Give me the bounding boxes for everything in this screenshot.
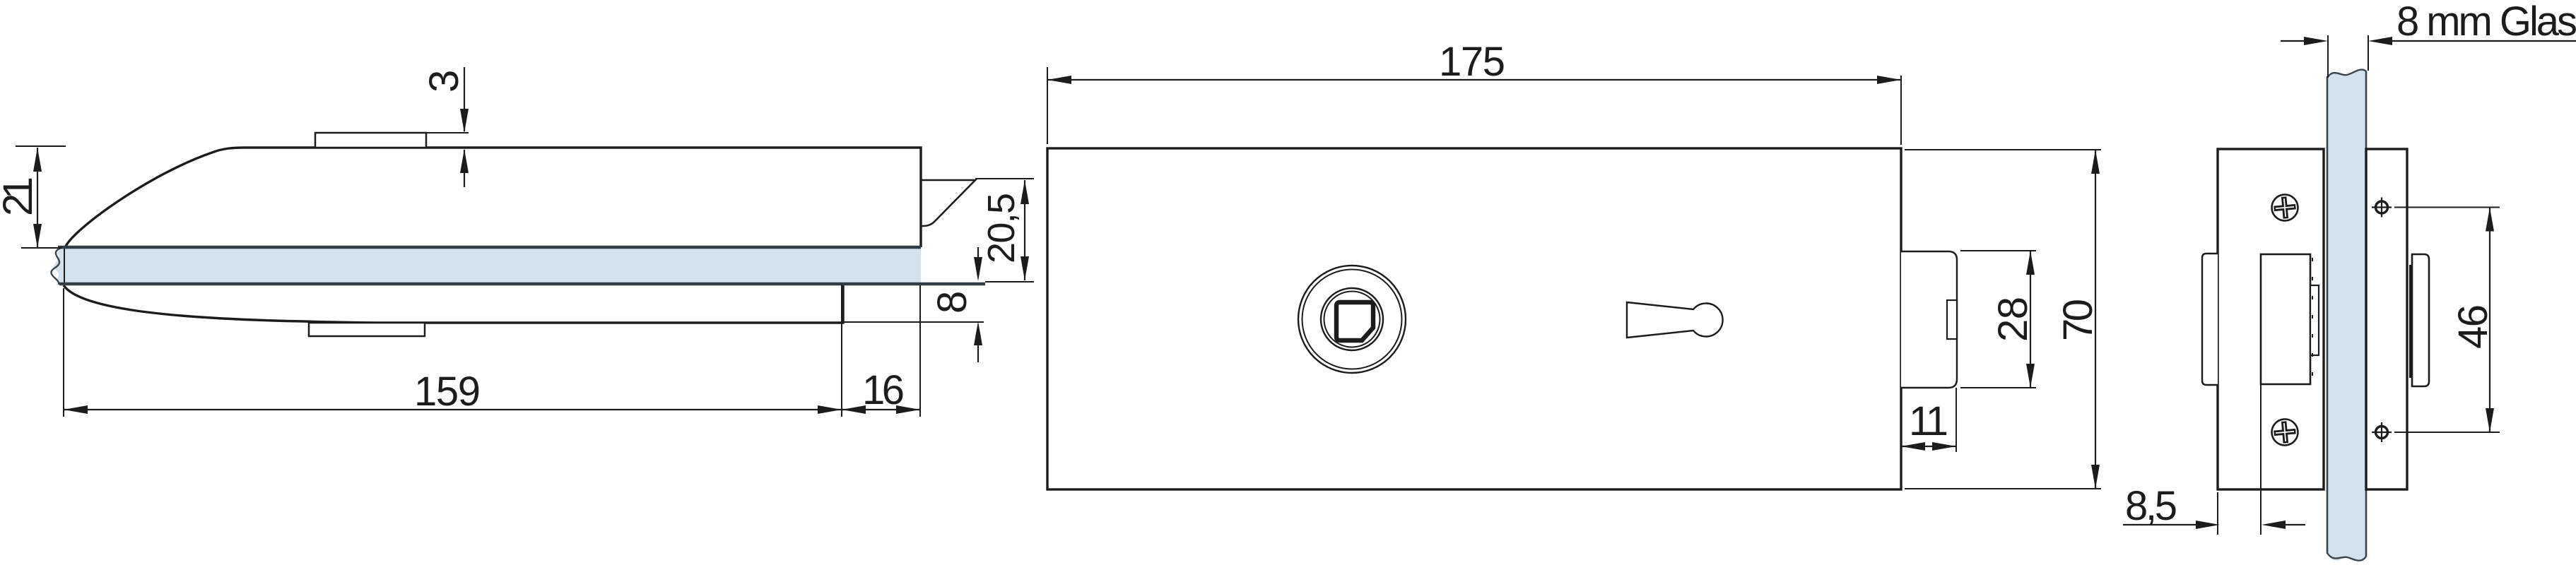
svg-text:8,5: 8,5 xyxy=(2125,483,2177,529)
svg-text:159: 159 xyxy=(414,369,481,415)
svg-text:175: 175 xyxy=(1439,39,1505,85)
svg-text:70: 70 xyxy=(2055,299,2101,341)
svg-text:46: 46 xyxy=(2450,304,2496,349)
svg-text:11: 11 xyxy=(1909,398,1948,444)
svg-text:28: 28 xyxy=(1990,297,2036,342)
svg-text:3: 3 xyxy=(421,70,467,93)
svg-text:20,5: 20,5 xyxy=(980,193,1023,263)
svg-text:16: 16 xyxy=(862,367,905,413)
svg-text:8 mm Glas: 8 mm Glas xyxy=(2396,0,2576,44)
svg-text:21: 21 xyxy=(0,177,41,216)
svg-text:8: 8 xyxy=(929,291,975,314)
